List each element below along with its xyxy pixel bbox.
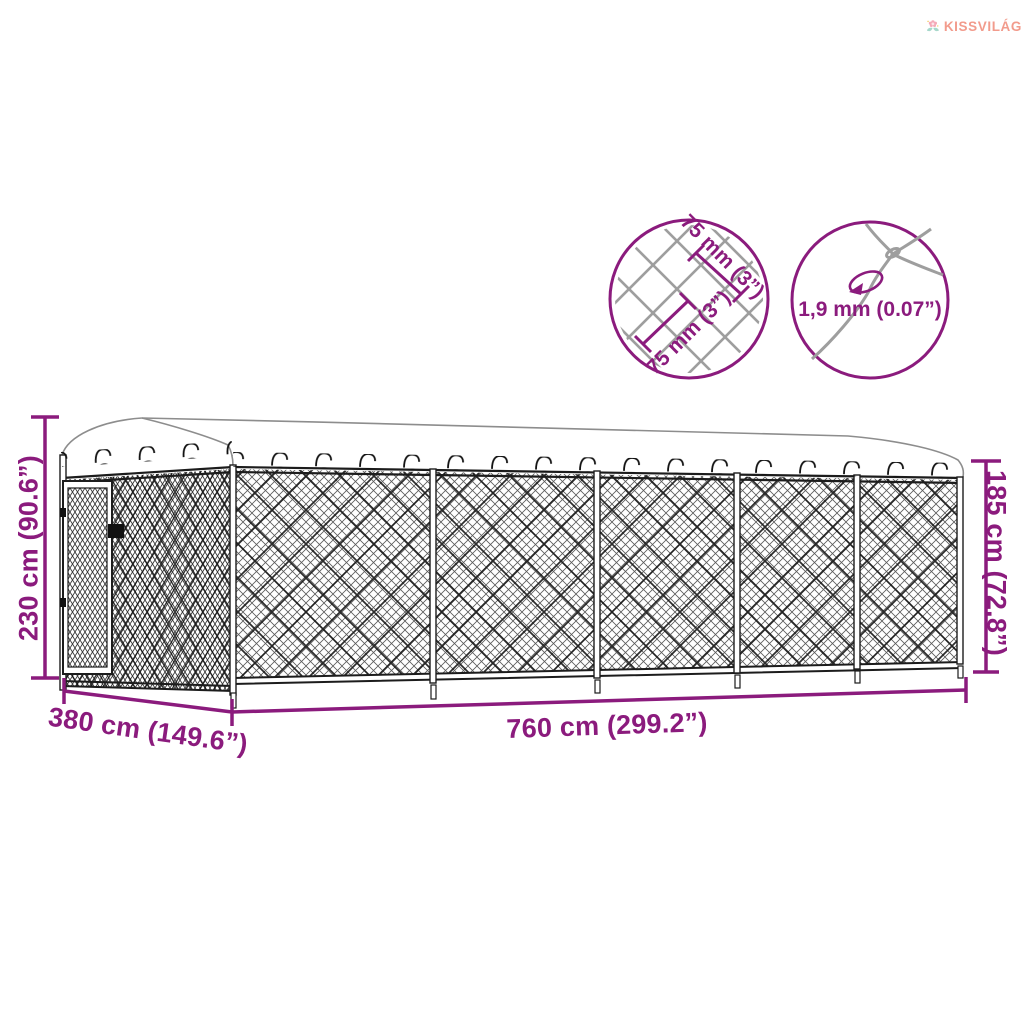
door-hinge-top	[60, 508, 66, 517]
door-hinge-bottom	[60, 598, 66, 607]
wire-diameter-label: 1,9 mm (0.07”)	[798, 298, 942, 322]
door-latch	[108, 524, 124, 538]
flower-icon	[926, 9, 940, 43]
dimension-total-height-label: 230 cm (90.6”)	[14, 455, 45, 641]
brand-name: KISSVILÁG	[944, 19, 1022, 34]
product-dimension-diagram: 230 cm (90.6”) 380 cm (149.6”) 760 cm (2…	[0, 0, 1024, 1024]
brand-logo: KISSVILÁG	[926, 8, 1022, 44]
dimension-side-height-label: 185 cm (72.8”)	[981, 470, 1012, 656]
kennel-line-drawing	[0, 0, 1024, 1024]
